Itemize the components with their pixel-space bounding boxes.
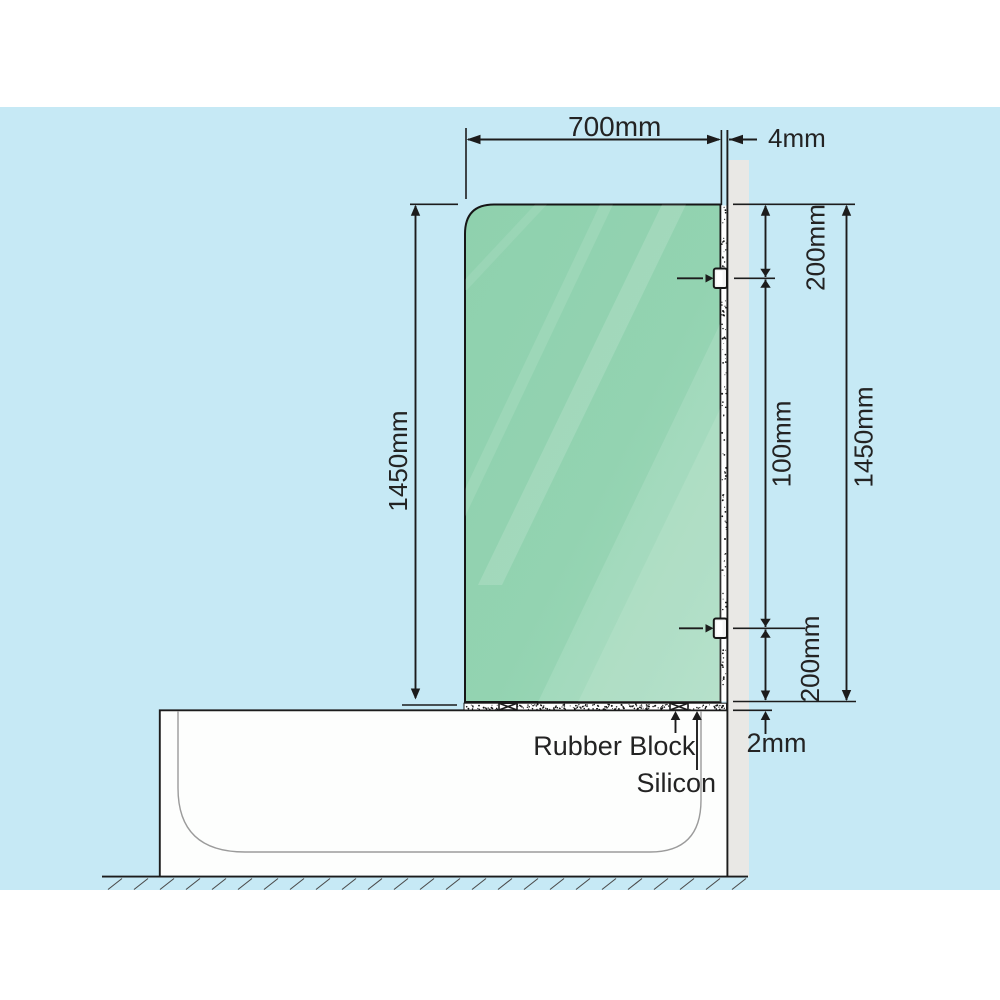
svg-text:100mm: 100mm bbox=[767, 401, 797, 488]
svg-text:1450mm: 1450mm bbox=[849, 386, 879, 487]
svg-text:Silicon: Silicon bbox=[637, 768, 717, 798]
svg-text:200mm: 200mm bbox=[795, 616, 825, 703]
svg-text:4mm: 4mm bbox=[768, 123, 826, 153]
svg-text:2mm: 2mm bbox=[747, 728, 807, 758]
svg-text:1450mm: 1450mm bbox=[383, 410, 413, 511]
svg-text:700mm: 700mm bbox=[568, 111, 661, 142]
svg-text:200mm: 200mm bbox=[801, 204, 831, 291]
svg-text:Rubber Block: Rubber Block bbox=[533, 731, 696, 761]
